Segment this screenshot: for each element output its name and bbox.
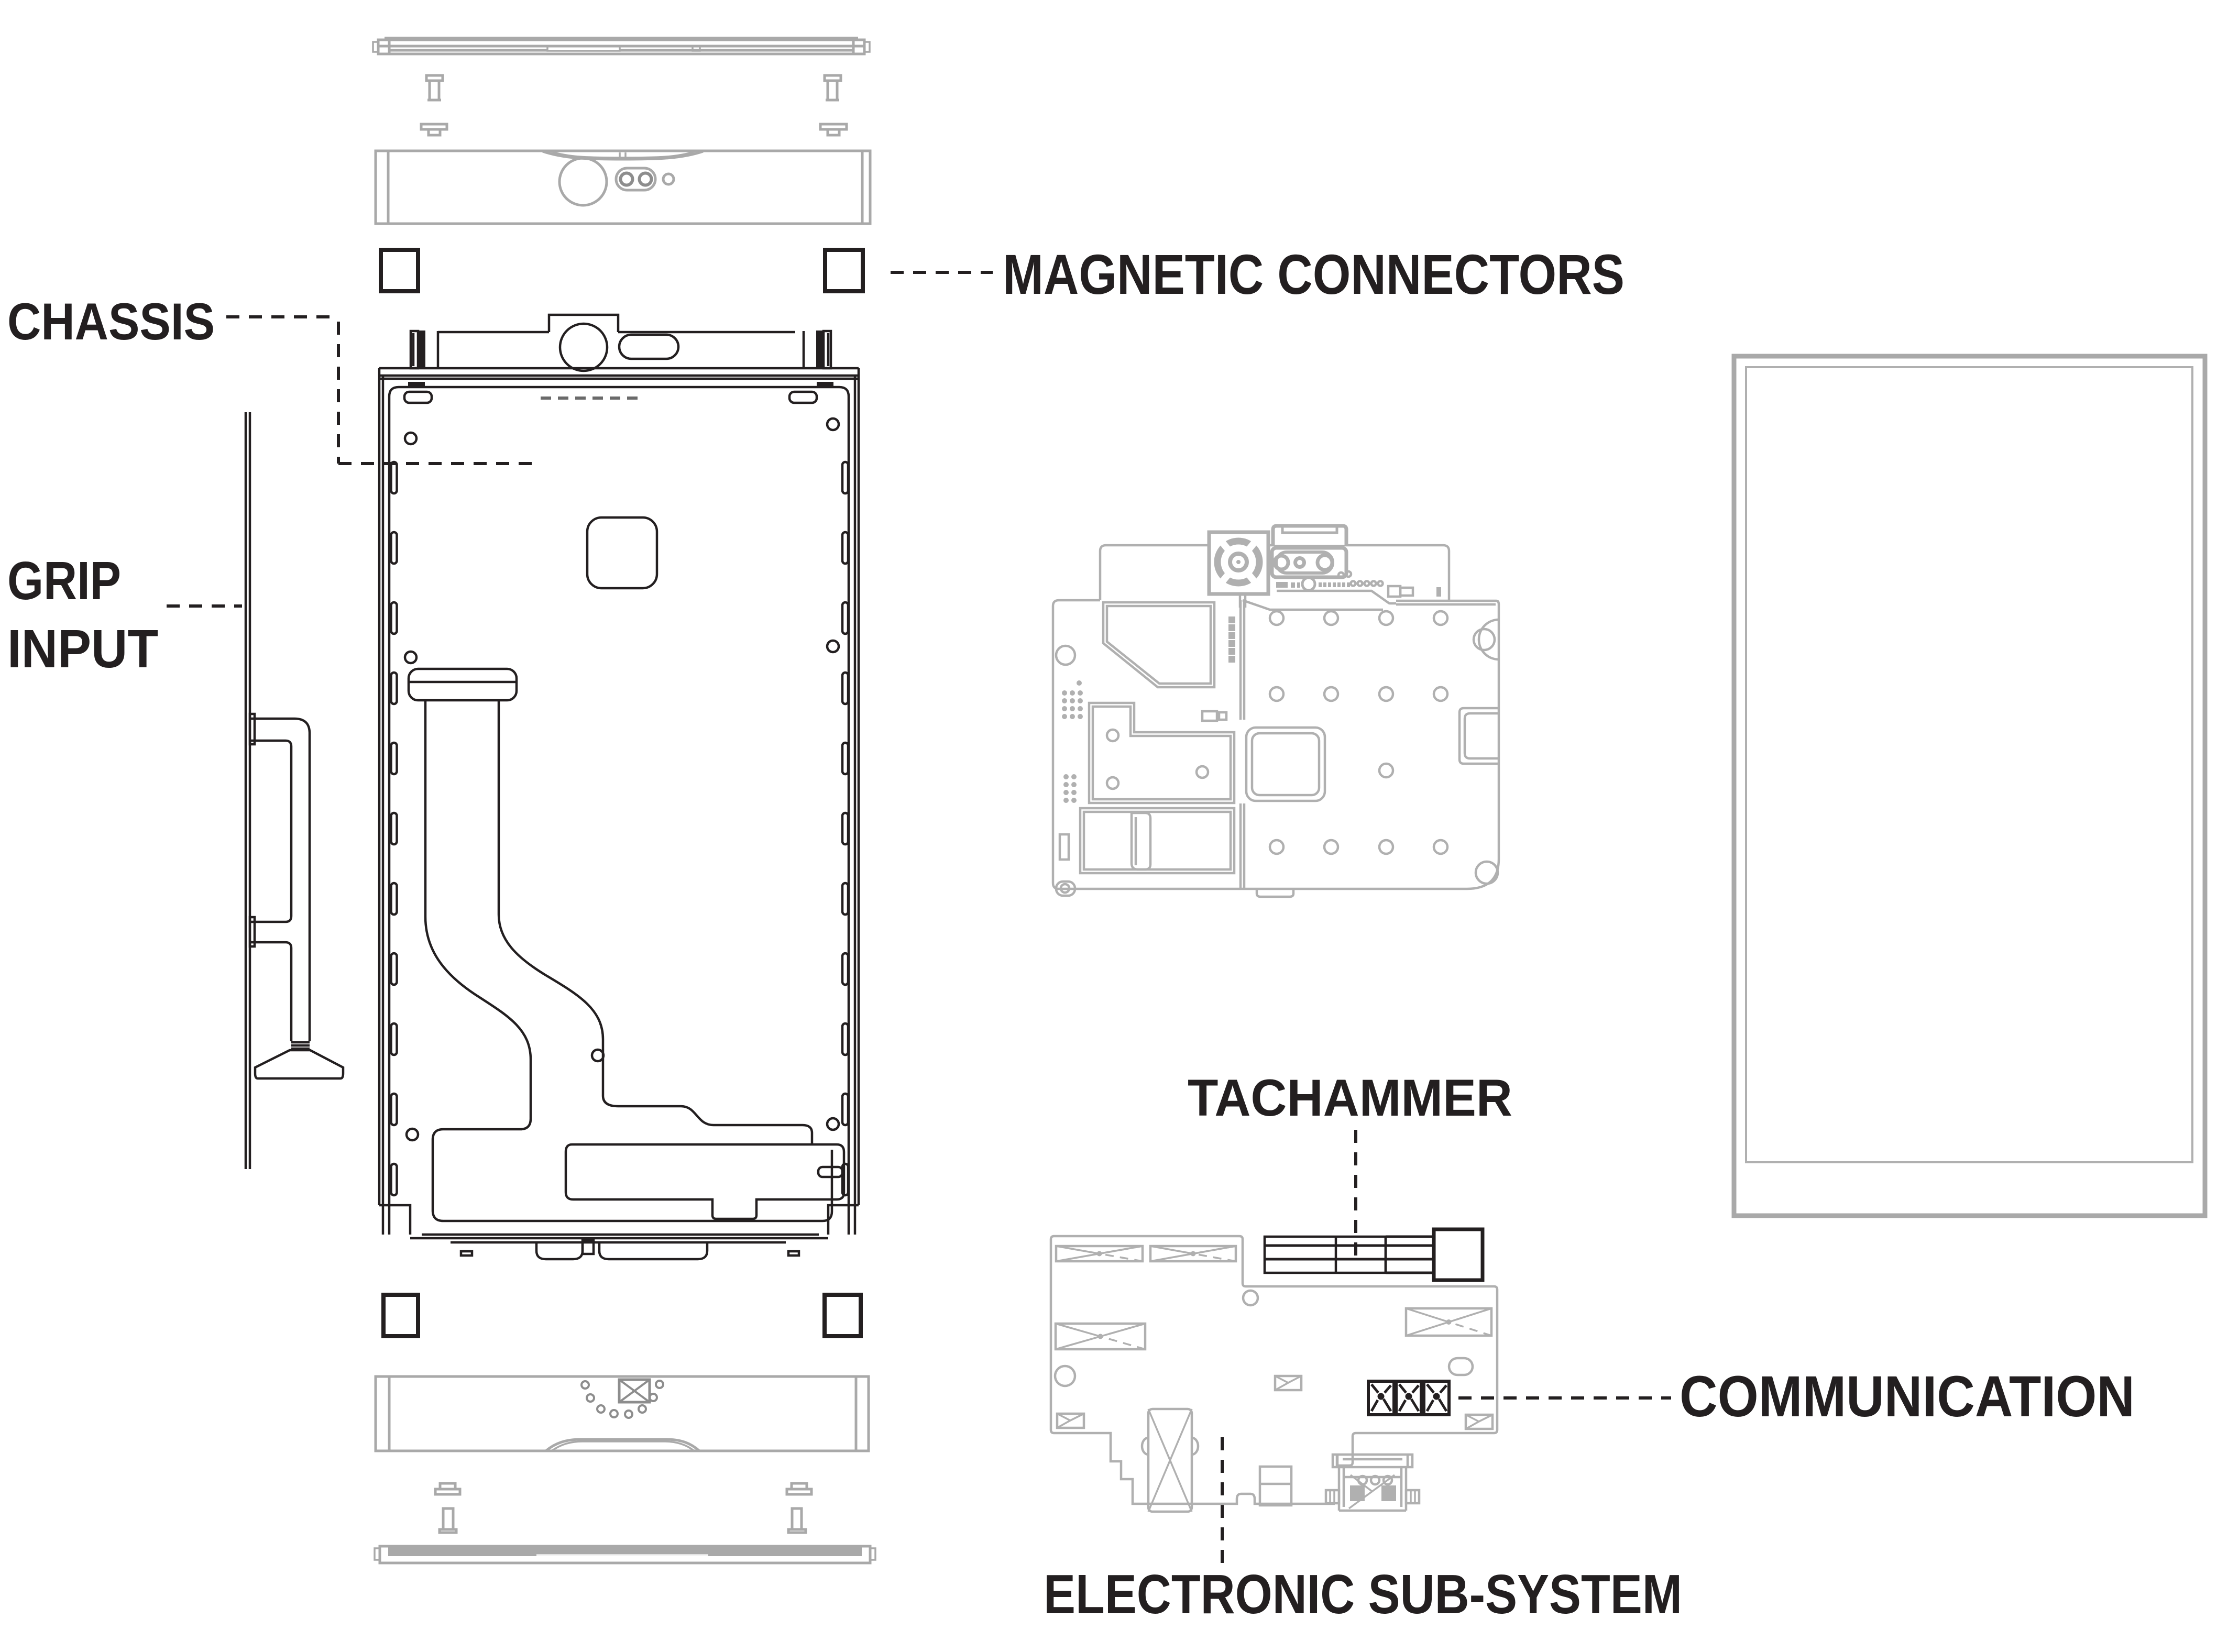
svg-text:TACHAMMER: TACHAMMER: [1188, 1069, 1512, 1127]
svg-text:CHASSIS: CHASSIS: [7, 292, 215, 350]
svg-text:COMMUNICATION: COMMUNICATION: [1680, 1364, 2135, 1429]
svg-text:MAGNETIC CONNECTORS: MAGNETIC CONNECTORS: [1003, 243, 1625, 306]
svg-text:ELECTRONIC SUB-SYSTEM: ELECTRONIC SUB-SYSTEM: [1044, 1563, 1682, 1625]
svg-text:INPUT: INPUT: [7, 619, 158, 679]
svg-text:GRIP: GRIP: [7, 550, 121, 611]
